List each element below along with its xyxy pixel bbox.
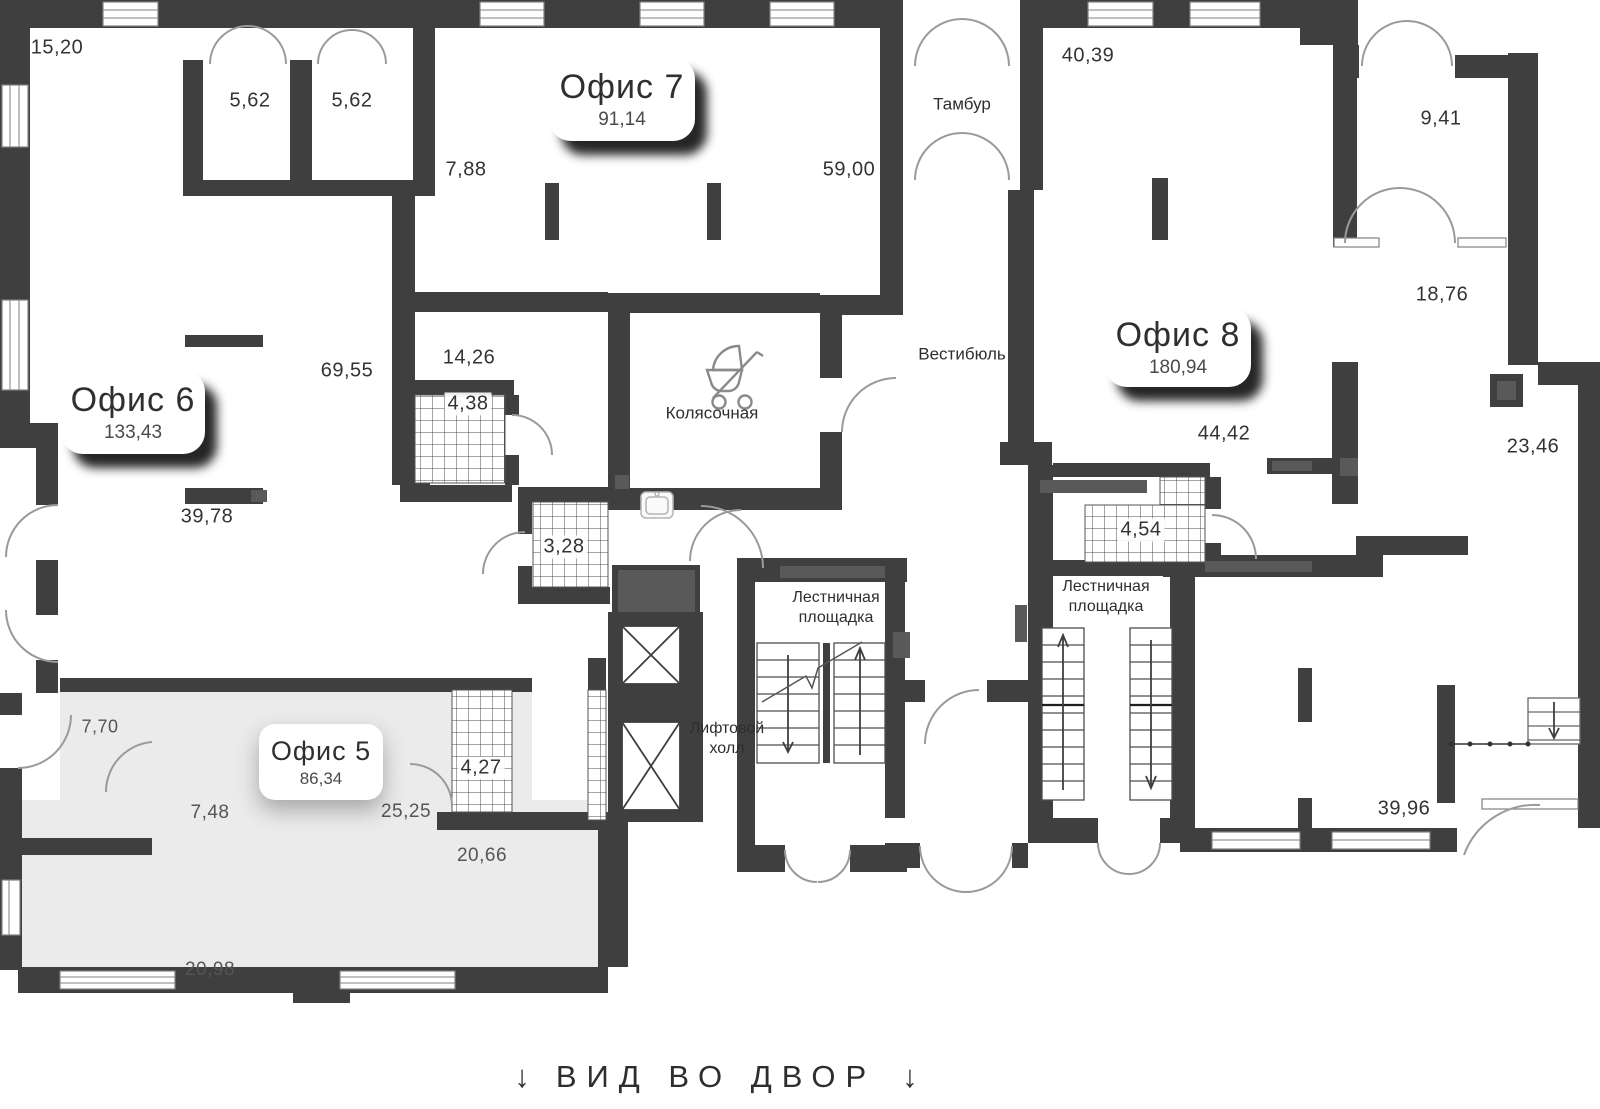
floorplan-linework	[0, 0, 1600, 1109]
dim-18-76: 18,76	[1416, 284, 1469, 307]
dim-9-41: 9,41	[1421, 108, 1462, 131]
room-label-tambur: Тамбур	[933, 93, 991, 114]
dim-4-54: 4,54	[1118, 519, 1165, 542]
down-arrow-icon: ↓	[902, 1059, 918, 1095]
office-8-name: Офис 8	[1116, 316, 1241, 355]
room-label-stroller: Колясочная	[666, 402, 759, 423]
office-5-badge[interactable]: Офис 5 86,34	[259, 724, 383, 800]
office-7-name: Офис 7	[560, 68, 685, 107]
dim-3-28: 3,28	[541, 536, 588, 559]
sink-icon	[641, 492, 673, 518]
dim-25-25: 25,25	[381, 801, 431, 823]
dim-4-38: 4,38	[445, 393, 492, 416]
room-label-elevator-hall: Лифтовой холл	[690, 719, 764, 759]
office-8-area: 180,94	[1149, 357, 1207, 379]
dim-69-55: 69,55	[321, 360, 374, 383]
down-arrow-icon: ↓	[514, 1059, 530, 1095]
dim-15-20: 15,20	[31, 37, 84, 60]
dim-20-66: 20,66	[457, 845, 507, 867]
entrance-steps	[1449, 698, 1581, 747]
office-7-area: 91,14	[598, 109, 646, 131]
dim-39-78: 39,78	[181, 506, 234, 529]
dim-7-70: 7,70	[81, 717, 118, 738]
room-label-stair-1: Лестничная площадка	[792, 588, 879, 628]
office-8-badge[interactable]: Офис 8 180,94	[1105, 307, 1251, 387]
dim-40-39: 40,39	[1062, 45, 1115, 68]
dim-59-00: 59,00	[823, 159, 876, 182]
dim-4-27: 4,27	[458, 757, 505, 780]
courtyard-view-caption: ↓ ВИД ВО ДВОР ↓	[514, 1059, 917, 1095]
dim-23-46: 23,46	[1507, 436, 1560, 459]
room-label-stair-2: Лестничная площадка	[1062, 577, 1149, 617]
stairs-left	[757, 642, 885, 763]
dim-44-42: 44,42	[1198, 423, 1251, 446]
dim-5-62-a: 5,62	[230, 90, 271, 113]
office-6-badge[interactable]: Офис 6 133,43	[61, 370, 205, 454]
courtyard-view-text: ВИД ВО ДВОР	[556, 1059, 876, 1095]
stairs-right	[1042, 628, 1172, 800]
office-6-name: Офис 6	[71, 381, 196, 420]
office-7-badge[interactable]: Офис 7 91,14	[549, 57, 695, 141]
dim-20-98: 20,98	[185, 959, 235, 981]
dim-39-96: 39,96	[1378, 798, 1431, 821]
dim-7-88: 7,88	[446, 159, 487, 182]
office-6-area: 133,43	[104, 422, 162, 444]
floor-plan: Офис 7 91,14 Офис 8 180,94 Офис 6 133,43…	[0, 0, 1600, 1109]
room-label-vestibule: Вестибюль	[918, 343, 1005, 364]
dim-5-62-b: 5,62	[332, 90, 373, 113]
dim-14-26: 14,26	[443, 347, 496, 370]
office-5-name: Офис 5	[271, 736, 371, 767]
dim-7-48: 7,48	[191, 802, 230, 824]
stroller-icon	[707, 346, 763, 409]
office-5-area: 86,34	[300, 769, 343, 789]
